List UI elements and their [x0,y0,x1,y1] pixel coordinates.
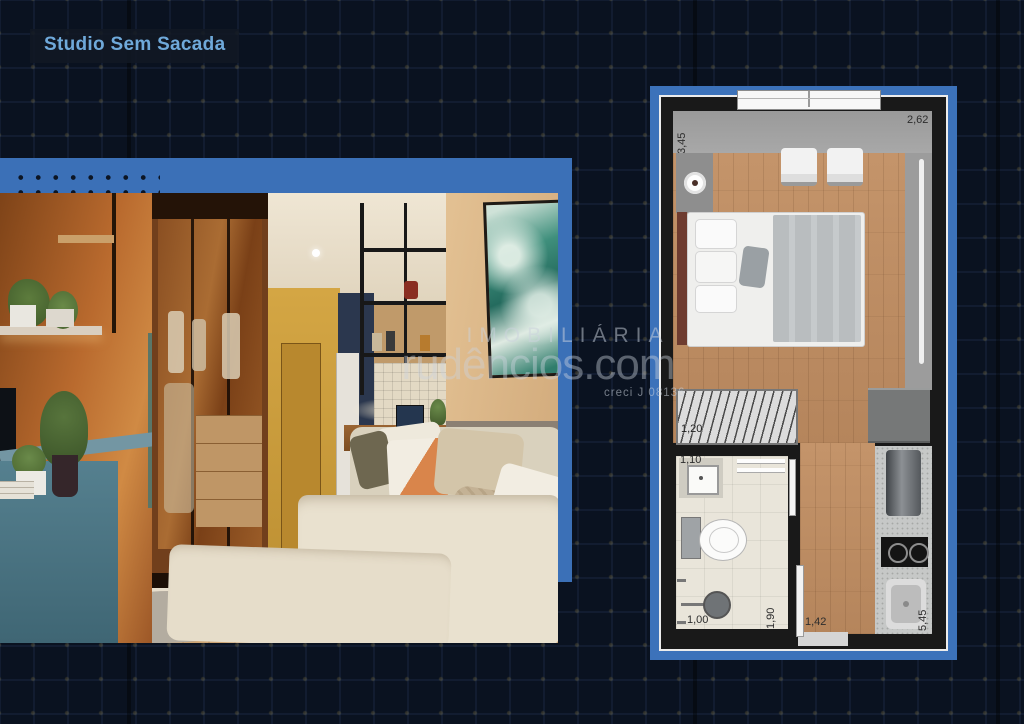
photo-planter [10,305,36,327]
tv-console-decor-center [692,180,698,186]
plan-top-zone [673,111,932,153]
bed-pillow [695,251,737,283]
photo-planter [46,309,74,327]
wardrobe [676,389,798,445]
window [737,90,881,110]
lounge-chair [781,148,817,186]
vanity-drain [699,476,703,480]
photo-closet [152,193,268,588]
window-divider [808,91,810,107]
dim-entry-width: 1,42 [805,616,826,628]
fridge [886,450,921,516]
photo-shelf-post [112,193,116,333]
entry-threshold [798,632,848,646]
shelf-item-kettle [404,281,418,299]
dim-main-width: 2,62 [907,114,928,126]
lounge-chair [827,148,863,186]
slide-canvas: 3,45 2,62 1,20 [0,0,1024,724]
photo-painting [483,200,558,379]
closet-clothes-long [164,383,194,513]
burner [909,543,929,563]
bed-pillow-gray [738,245,769,288]
shower-bracket [677,621,686,624]
photo-shelf [0,326,102,335]
vanity-basin [687,465,719,495]
window-divider [738,98,880,99]
ceiling-light [312,249,320,257]
dim-main-depth: 3,45 [676,114,688,154]
bed-pillow [695,219,737,249]
photo-books [0,481,34,499]
title-badge: Studio Sem Sacada [30,29,239,63]
photo-sofa-chaise [166,544,451,643]
closet-clothes [192,319,206,371]
floor-plan: 3,45 2,62 1,20 [650,86,957,660]
photo-vase [52,455,78,497]
entry-door [796,565,804,637]
closet-clothes [168,311,184,373]
dim-bathroom-inner: 1,00 [687,614,708,626]
photo-shelf [58,235,114,243]
toilet-tank [681,517,701,559]
corridor-floor [800,443,875,634]
kitchen-cabinet [868,388,930,443]
shelf-item-jar [386,331,395,351]
decor-dot-grid [8,166,160,196]
bed-blanket [773,215,861,342]
interior-photo [0,193,558,643]
bathroom-door [789,459,796,516]
background-seam [996,0,1000,724]
closet-clothes [222,313,240,379]
cooktop [881,537,928,567]
dim-bathroom-depth: 1,90 [765,593,777,629]
closet-drawers [196,415,262,527]
sink-drain [903,601,909,607]
bed-pillow [695,285,737,313]
dim-wardrobe: 1,20 [681,423,702,435]
shelf-item-jar [420,335,430,351]
towel-rack [737,468,785,473]
floor-plan-walls: 3,45 2,62 1,20 [659,95,948,651]
shelf-post [360,203,364,395]
towel-rack [737,459,785,464]
bed-headboard [677,212,687,345]
dim-total-depth: 5,45 [917,591,929,631]
shelf-item-jar [372,333,382,351]
burner [888,543,908,563]
toilet-seat [709,527,739,553]
curtain [919,159,924,364]
closet-top-frame [152,193,268,219]
dim-bathroom-width: 1,10 [680,454,701,466]
shower-bracket [677,579,686,582]
